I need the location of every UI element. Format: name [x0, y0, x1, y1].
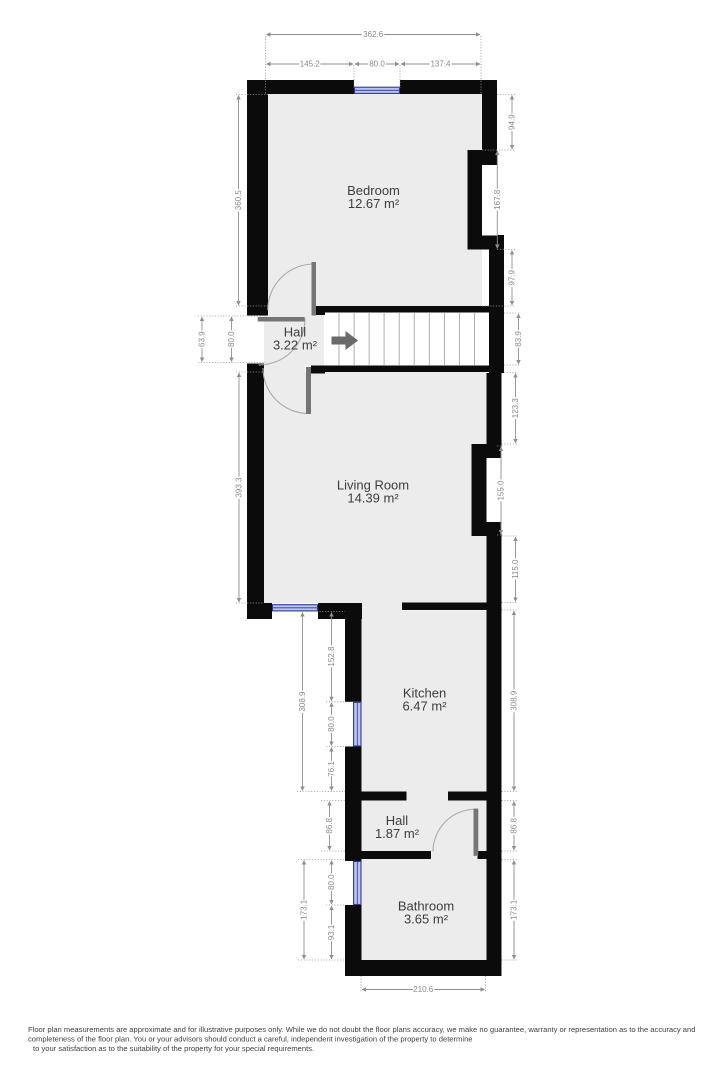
svg-text:115.0: 115.0 — [511, 559, 520, 579]
svg-text:308.9: 308.9 — [298, 691, 307, 712]
svg-text:155.0: 155.0 — [497, 480, 506, 501]
svg-text:76.1: 76.1 — [327, 761, 336, 777]
svg-text:83.9: 83.9 — [514, 331, 523, 347]
svg-text:12.67 m²: 12.67 m² — [348, 196, 400, 211]
svg-text:80.0: 80.0 — [227, 331, 236, 347]
svg-text:80.0: 80.0 — [369, 60, 385, 69]
svg-text:completeness of the floor plan: completeness of the floor plan. You or y… — [28, 1035, 473, 1044]
svg-text:308.9: 308.9 — [510, 690, 519, 711]
svg-text:97.9: 97.9 — [508, 269, 517, 285]
svg-text:63.9: 63.9 — [198, 331, 207, 347]
svg-text:80.0: 80.0 — [327, 716, 336, 732]
svg-text:173.1: 173.1 — [300, 899, 309, 920]
svg-text:362.6: 362.6 — [363, 30, 384, 39]
svg-text:86.8: 86.8 — [325, 817, 334, 833]
svg-text:360.5: 360.5 — [234, 190, 243, 211]
svg-text:94.9: 94.9 — [508, 114, 517, 130]
svg-text:80.0: 80.0 — [327, 874, 336, 890]
svg-text:3.22 m²: 3.22 m² — [273, 338, 318, 353]
svg-text:123.3: 123.3 — [511, 398, 520, 419]
svg-text:393.3: 393.3 — [235, 477, 244, 498]
svg-text:145.2: 145.2 — [300, 60, 321, 69]
svg-text:3.65 m²: 3.65 m² — [404, 912, 449, 927]
svg-text:167.8: 167.8 — [493, 189, 502, 210]
svg-text:14.39 m²: 14.39 m² — [347, 491, 399, 506]
svg-text:to your satisfaction as to the: to your satisfaction as to the suitabili… — [33, 1044, 314, 1053]
svg-text:1.87 m²: 1.87 m² — [375, 826, 420, 841]
svg-text:137.4: 137.4 — [430, 60, 451, 69]
svg-text:173.1: 173.1 — [510, 899, 519, 920]
svg-text:6.47 m²: 6.47 m² — [402, 699, 447, 714]
svg-text:93.1: 93.1 — [327, 924, 336, 940]
svg-text:86.8: 86.8 — [510, 817, 519, 833]
svg-text:152.8: 152.8 — [327, 646, 336, 667]
svg-text:Floor plan measurements are ap: Floor plan measurements are approximate … — [28, 1025, 695, 1034]
svg-text:210.6: 210.6 — [413, 985, 434, 994]
